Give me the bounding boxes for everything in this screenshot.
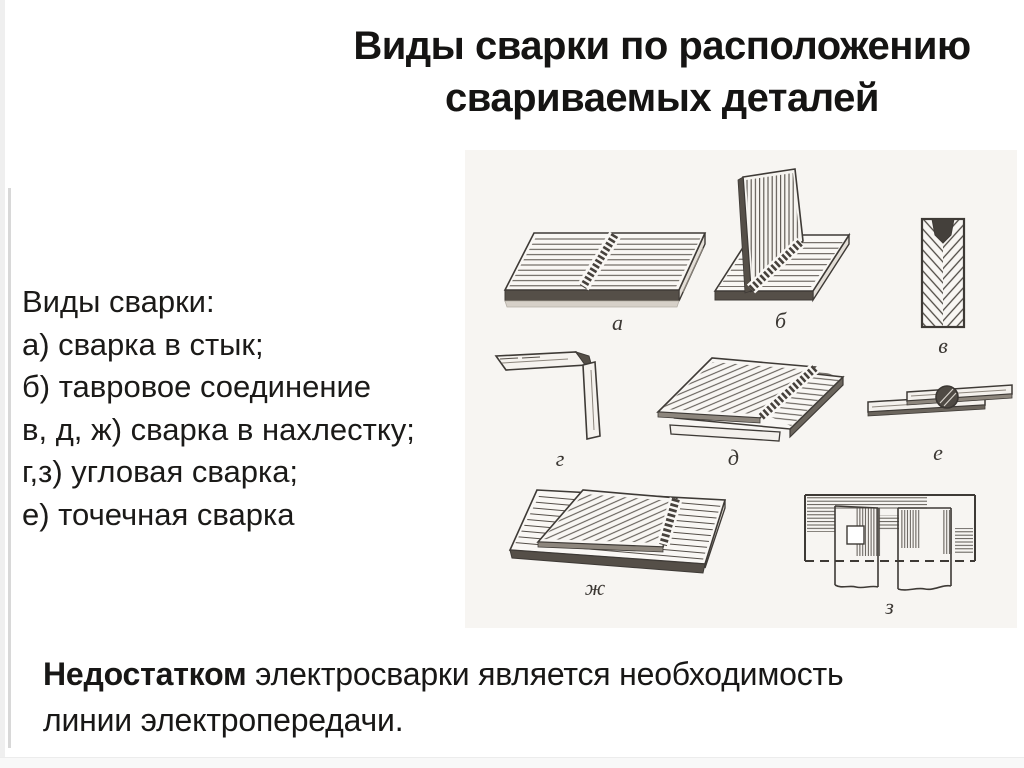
welding-type-item: б) тавровое соединение <box>22 366 482 409</box>
spot-weld-drawing <box>858 380 1018 440</box>
figure-label: а <box>510 312 725 334</box>
figure-lap-joint: д <box>645 352 850 469</box>
figure-label: д <box>631 447 836 469</box>
figure-label: в <box>913 335 973 357</box>
figure-slot-weld-schematic: з <box>797 486 982 618</box>
figure-spot-weld: е <box>858 380 1018 464</box>
figure-lap-weld-section: в <box>913 213 973 357</box>
figure-label: б <box>703 310 858 332</box>
page-left-edge <box>0 0 5 767</box>
figure-label: е <box>858 442 1018 464</box>
figure-corner-weld: г <box>488 346 608 470</box>
lap-joint-drawing <box>645 352 850 445</box>
slide-title-line1: Виды сварки по расположению <box>300 20 1024 72</box>
footer-line1-rest: электросварки является необходимость <box>246 656 843 692</box>
figure-label: з <box>797 596 982 618</box>
footer-line2: линии электропередачи. <box>43 697 943 743</box>
corner-weld-drawing <box>488 346 608 446</box>
slide-footer-note: Недостатком электросварки является необх… <box>43 651 943 743</box>
figure-label: ж <box>480 577 710 599</box>
butt-weld-drawing <box>497 226 712 310</box>
lap-weld-section-drawing <box>913 213 973 333</box>
figure-label: г <box>500 448 620 470</box>
lap-weld-drawing <box>500 478 730 575</box>
slide-title-line2: свариваемых деталей <box>300 72 1024 124</box>
left-vertical-rule <box>8 188 11 748</box>
welding-type-item: е) точечная сварка <box>22 494 482 537</box>
welding-type-item: а) сварка в стык; <box>22 324 482 367</box>
slot-weld-schematic-drawing <box>797 486 982 594</box>
footer-lead-word: Недостатком <box>43 656 246 692</box>
page-bottom-strip <box>0 757 1024 768</box>
slide-title: Виды сварки по расположению свариваемых … <box>300 20 1024 124</box>
welding-type-item: в, д, ж) сварка в нахлестку; <box>22 409 482 452</box>
figure-tee-joint: б <box>703 163 858 332</box>
figure-butt-weld: а <box>497 226 712 334</box>
tee-joint-drawing <box>703 163 858 308</box>
figure-lap-weld: ж <box>500 478 730 599</box>
footer-line1: Недостатком электросварки является необх… <box>43 651 943 697</box>
welding-types-list: Виды сварки: а) сварка в стык; б) тавров… <box>22 281 482 536</box>
welding-type-item: г,з) угловая сварка; <box>22 451 482 494</box>
welding-types-heading: Виды сварки: <box>22 281 482 324</box>
